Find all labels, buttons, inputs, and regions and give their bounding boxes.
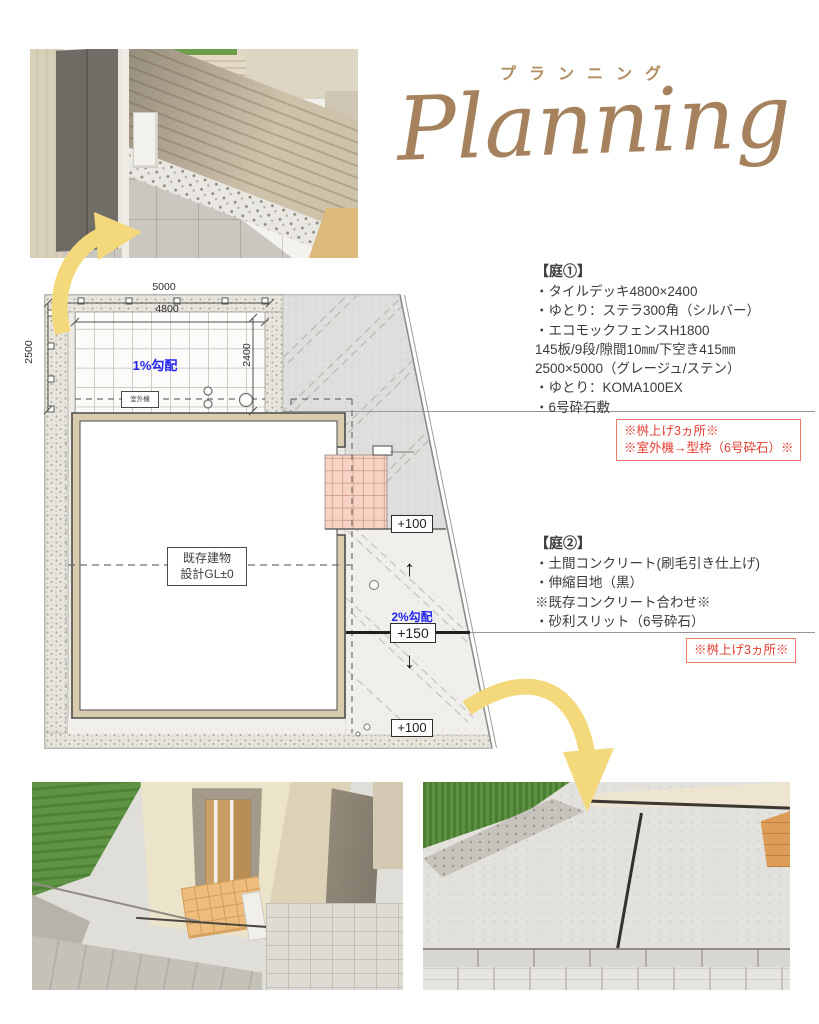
orange-tiles [761, 811, 790, 867]
ac-unit-box [133, 112, 158, 168]
slope-arrow-up: ↑ [404, 556, 415, 582]
garden1-line: ・ゆとり：ステラ300角（シルバー） [535, 301, 819, 320]
grass-corner [32, 782, 143, 896]
slope-arrow-down: ↓ [404, 648, 415, 674]
garden1-heading: 【庭①】 [535, 262, 819, 282]
garden1-spec: 【庭①】 ・タイルデッキ4800×2400 ・ゆとり：ステラ300角（シルバー）… [535, 262, 819, 417]
title-script: Planning [375, 27, 813, 220]
site-plan-drawing [0, 270, 530, 770]
building-label-2: 設計GL±0 [168, 567, 246, 583]
red-note-2: ※桝上げ3ヵ所※ [686, 638, 796, 663]
road-lower [32, 936, 262, 990]
sliding-door [56, 49, 122, 251]
outdoor-unit-label: 室外機 [130, 396, 150, 403]
garden2-heading: 【庭②】 [535, 534, 819, 554]
red-note-1-line2: ※室外機→型枠（6号砕石）※ [624, 440, 793, 457]
garden2-line: ※既存コンクリート合わせ※ [535, 593, 819, 612]
outdoor-unit-box: 室外機 [121, 391, 159, 408]
garden2-spec: 【庭②】 ・土間コンクリート(刷毛引き仕上げ) ・伸縮目地（黒） ※既存コンクリ… [535, 534, 819, 631]
door-post [122, 49, 129, 258]
garden1-line: ・エコモックフェンスH1800 [535, 321, 819, 340]
red-note-1-line1: ※桝上げ3ヵ所※ [624, 423, 793, 440]
red-note-1: ※桝上げ3ヵ所※ ※室外機→型枠（6号砕石）※ [616, 419, 801, 461]
dim-2400: 2400 [241, 333, 253, 377]
garden1-line: ・ゆとり：KOMA100EX [535, 378, 819, 397]
red-note-2-line1: ※桝上げ3ヵ所※ [694, 642, 788, 659]
existing-building-label-box: 既存建物 設計GL±0 [167, 547, 247, 586]
approach-stairs [325, 446, 392, 529]
render-entrance-view [32, 782, 403, 990]
render-tile-deck-view [30, 49, 358, 258]
level-lower-box: +100 [391, 719, 433, 737]
render-concrete-yard-view [423, 782, 790, 990]
garden1-line: ・6号砕石敷 [535, 398, 819, 417]
garden1-line: 145板/9段/隙間10㎜/下空き415㎜ [535, 340, 819, 359]
front-paving [423, 967, 790, 990]
garden1-line: 2500×5000（グレージュ/ステン） [535, 359, 819, 378]
right-path-tiles [266, 903, 403, 990]
garden2-line: ・土間コンクリート(刷毛引き仕上げ) [535, 554, 819, 573]
dim-2500: 2500 [23, 330, 35, 374]
planning-sheet: プランニング Planning [0, 0, 819, 1024]
reference-line-lower [470, 632, 815, 633]
side-wall-top [373, 782, 403, 869]
garden1-line: ・タイルデッキ4800×2400 [535, 282, 819, 301]
building-label-1: 既存建物 [168, 551, 246, 567]
expansion-joint [612, 813, 642, 967]
slope-label-deck: 1%勾配 [115, 355, 195, 374]
garden2-line: ・伸縮目地（黒） [535, 573, 819, 592]
garden2-line: ・砂利スリット（6号砕石） [535, 612, 819, 631]
dim-5000: 5000 [134, 281, 194, 293]
level-upper-box: +100 [391, 515, 433, 533]
level-mid-box: +150 [390, 623, 436, 643]
dim-4800: 4800 [137, 303, 197, 315]
block-wall-top [423, 948, 790, 969]
